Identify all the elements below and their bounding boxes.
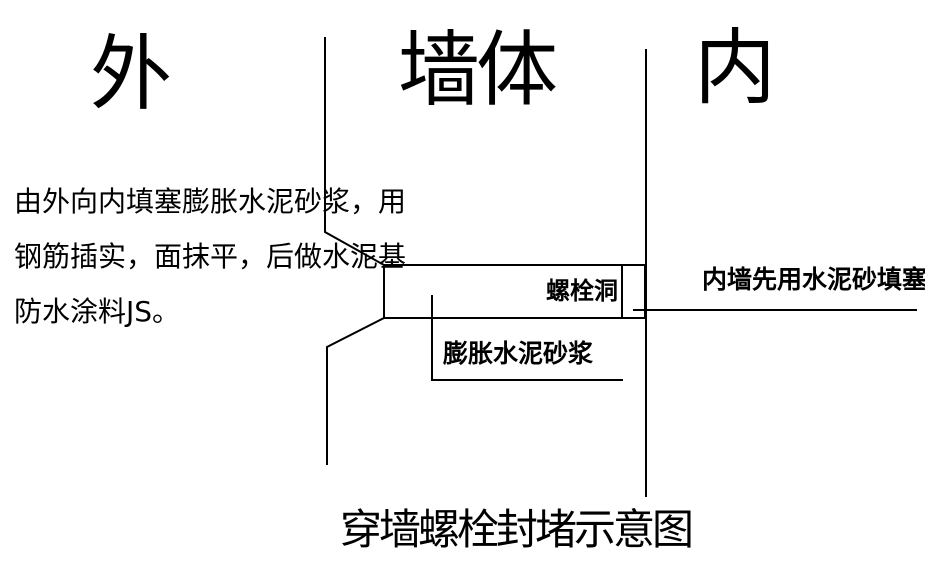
bolt-hole-label: 螺栓洞 bbox=[546, 279, 618, 303]
zone-label-outside: 外 bbox=[90, 34, 168, 116]
zone-label-wall: 墙体 bbox=[398, 30, 554, 112]
inner-wall-note-label: 内墙先用水泥砂填塞 bbox=[702, 267, 925, 292]
outer-wall-line-lower bbox=[327, 318, 384, 465]
diagram-canvas: 外 墙体 内 由外向内填塞膨胀水泥砂浆，用 钢筋插实，面抹平，后做水泥基 防水涂… bbox=[0, 0, 925, 580]
note-line-2: 钢筋插实，面抹平，后做水泥基 bbox=[14, 229, 406, 284]
zone-label-inside: 内 bbox=[694, 28, 772, 110]
expansion-mortar-label: 膨胀水泥砂浆 bbox=[443, 341, 593, 366]
note-line-3: 防水涂料JS。 bbox=[14, 284, 406, 339]
diagram-title: 穿墙螺栓封堵示意图 bbox=[340, 509, 691, 551]
note-line-1: 由外向内填塞膨胀水泥砂浆，用 bbox=[14, 174, 406, 229]
left-instruction-note: 由外向内填塞膨胀水泥砂浆，用 钢筋插实，面抹平，后做水泥基 防水涂料JS。 bbox=[14, 174, 406, 339]
